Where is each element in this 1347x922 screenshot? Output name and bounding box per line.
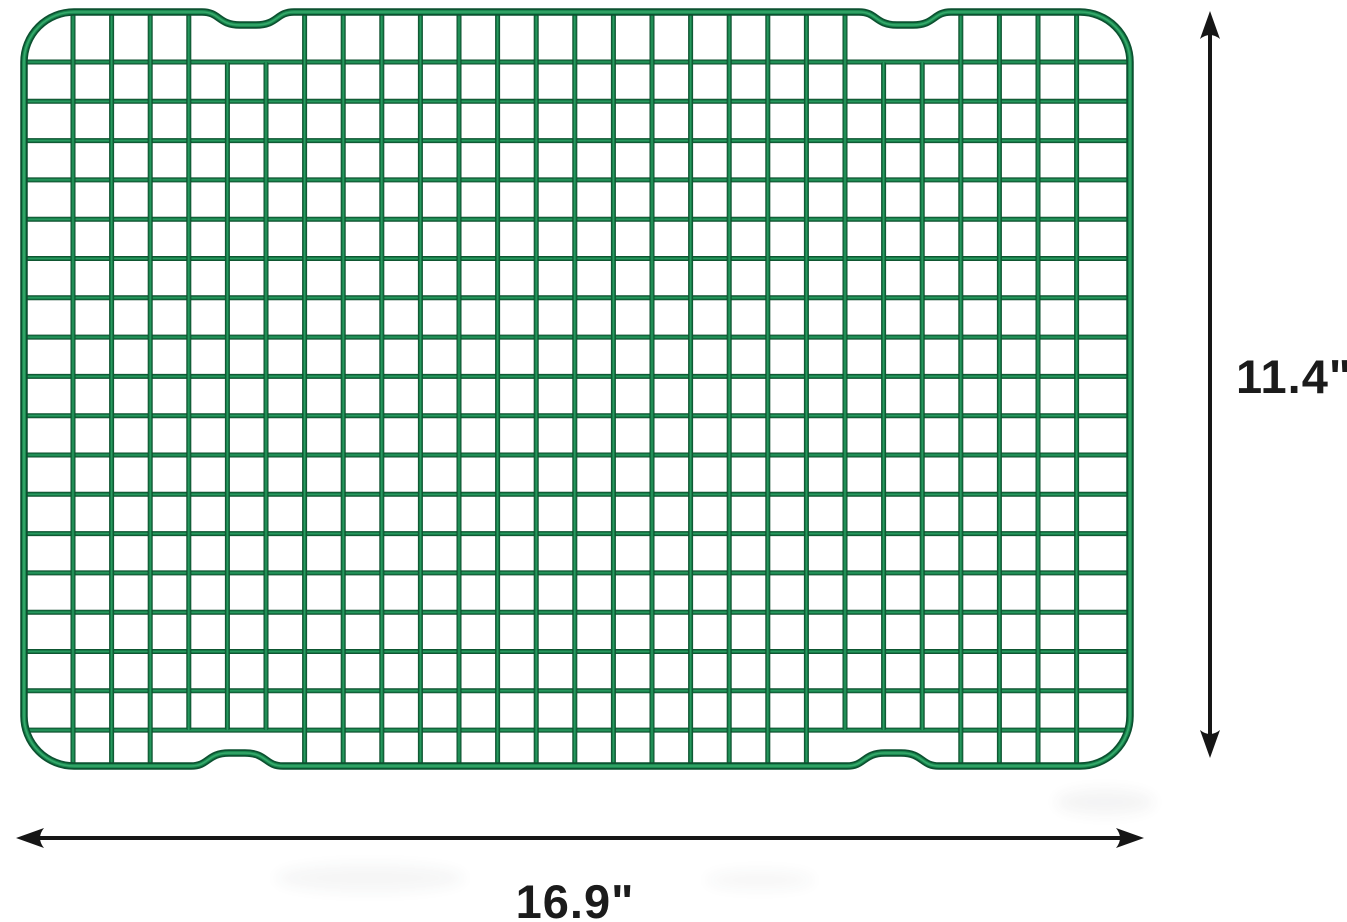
rack-vertical-wire: [765, 14, 770, 764]
rack-vertical-wire: [727, 14, 732, 764]
rack-vertical-wire: [804, 14, 809, 764]
rack-vertical-wire: [71, 14, 76, 764]
width-dimension-arrow: [16, 828, 1144, 848]
rack-vertical-wire: [958, 14, 963, 764]
rack-vertical-wire: [997, 14, 1002, 764]
cooling-rack: [24, 12, 1130, 766]
rack-vertical-wire: [650, 14, 655, 764]
rack-vertical-wire: [379, 14, 384, 764]
rack-vertical-wire: [572, 14, 577, 764]
rack-vertical-wire: [264, 62, 269, 730]
rack-vertical-wire: [534, 14, 539, 764]
width-dimension-label: 16.9": [460, 874, 690, 922]
rack-vertical-wire: [109, 14, 114, 764]
rack-vertical-wire: [418, 14, 423, 764]
rack-vertical-wire: [457, 14, 462, 764]
product-dimension-image: 11.4" 16.9": [0, 0, 1347, 922]
rack-vertical-wire: [341, 14, 346, 764]
rack-vertical-wire: [1074, 14, 1079, 764]
rack-vertical-wire: [688, 14, 693, 764]
rack-vertical-wire: [611, 14, 616, 764]
arrowhead-icon: [1200, 730, 1220, 758]
rack-vertical-wire: [843, 14, 848, 730]
arrowhead-icon: [1116, 828, 1144, 848]
rack-vertical-wire: [148, 14, 153, 764]
rack-vertical-wire: [302, 14, 307, 764]
rack-vertical-wire: [225, 62, 230, 730]
rack-vertical-wire: [495, 14, 500, 764]
arrowhead-icon: [16, 828, 44, 848]
rack-vertical-wire: [920, 62, 925, 730]
height-dimension-arrow: [1200, 11, 1220, 758]
scene-canvas: [0, 0, 1347, 922]
rack-vertical-wire: [1036, 14, 1041, 764]
height-dimension-label: 11.4": [1236, 349, 1347, 404]
photo-soft-shadows: [275, 789, 1155, 892]
rack-vertical-wire: [186, 14, 191, 730]
arrowhead-icon: [1200, 11, 1220, 39]
rack-vertical-wire: [881, 62, 886, 730]
